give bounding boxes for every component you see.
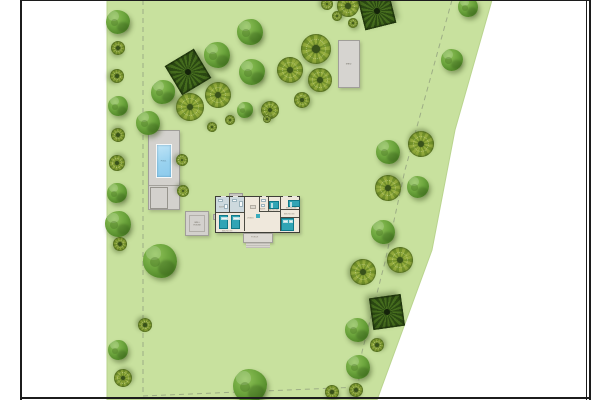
tree-foliage-blob	[240, 382, 250, 392]
tree-foliage-blob	[387, 152, 399, 163]
tree-fluffy	[143, 244, 177, 278]
tree-foliage-blob	[162, 92, 174, 103]
tree-patterned	[383, 243, 417, 277]
tree-fluffy	[407, 176, 429, 198]
tree-patterned	[108, 125, 127, 144]
tree-foliage-blob	[112, 104, 118, 110]
page-border-bottom	[20, 397, 591, 399]
tree-patterned	[374, 174, 401, 201]
page-border-right-inner	[589, 0, 590, 400]
tree-foliage-blob	[242, 29, 250, 37]
tree-fluffy	[376, 140, 400, 164]
tree-foliage-blob	[417, 187, 428, 197]
tree-foliage-blob	[209, 52, 217, 60]
tree-foliage-blob	[116, 193, 126, 202]
tree-patterned	[369, 337, 385, 353]
tree-palmate	[369, 294, 405, 330]
tree-patterned	[403, 126, 439, 162]
page-border-left	[20, 0, 22, 400]
tree-foliage-blob	[112, 348, 118, 354]
tree-foliage-blob	[451, 60, 462, 70]
tree-foliage-blob	[117, 224, 130, 236]
tree-patterned	[174, 152, 191, 169]
tree-patterned	[293, 91, 311, 109]
page-border-right-outer	[586, 0, 587, 400]
tree-fluffy	[346, 355, 370, 379]
tree-patterned	[111, 235, 130, 254]
tree-foliage-blob	[357, 367, 369, 378]
tree-foliage-blob	[244, 69, 252, 77]
tree-trunk-dot	[184, 68, 192, 76]
tree-trunk-dot	[375, 343, 379, 347]
tree-foliage-blob	[244, 110, 252, 117]
tree-patterned	[108, 67, 125, 84]
tree-foliage-blob	[158, 260, 175, 275]
tree-trunk-dot	[374, 8, 381, 15]
tree-fluffy	[107, 183, 127, 203]
tree-foliage-blob	[462, 5, 468, 11]
tree-foliage-blob	[240, 108, 245, 113]
tree-fluffy	[458, 0, 478, 17]
tree-fluffy	[136, 111, 160, 135]
tree-fluffy	[239, 59, 265, 85]
tree-foliage-blob	[382, 232, 394, 243]
tree-patterned	[345, 254, 380, 289]
tree-fluffy	[237, 102, 253, 118]
tree-fluffy	[441, 49, 463, 71]
tree-foliage-blob	[356, 330, 368, 341]
tree-foliage-blob	[216, 55, 229, 67]
tree-fluffy	[371, 220, 395, 244]
tree-patterned	[108, 38, 128, 58]
tree-patterned	[137, 317, 153, 333]
tree-foliage-blob	[110, 221, 118, 229]
tree-trunk-dot	[115, 161, 119, 165]
tree-patterned	[307, 67, 334, 94]
tree-foliage-blob	[117, 106, 127, 115]
tree-foliage-blob	[150, 257, 160, 267]
tree-fluffy	[108, 96, 128, 116]
tree-trunk-dot	[384, 309, 390, 315]
tree-fluffy	[108, 340, 128, 360]
tree-patterned	[319, 0, 335, 12]
tree-foliage-blob	[411, 184, 418, 191]
tree-fluffy	[204, 42, 230, 68]
tree-fluffy	[233, 369, 267, 400]
site-plan-canvas: POOL SHED WELLHOUSE	[0, 0, 609, 400]
tree-fluffy	[151, 80, 175, 104]
tree-foliage-blob	[467, 7, 477, 16]
tree-patterned	[348, 18, 358, 28]
trees-layer	[0, 0, 609, 400]
tree-patterned	[177, 185, 190, 198]
tree-fluffy	[345, 318, 369, 342]
tree-trunk-dot	[143, 323, 147, 327]
tree-foliage-blob	[117, 22, 129, 33]
tree-foliage-blob	[249, 32, 262, 44]
page-border-top	[20, 0, 591, 1]
tree-trunk-dot	[354, 388, 358, 392]
tree-fluffy	[237, 19, 263, 45]
tree-palmate	[358, 0, 397, 30]
tree-foliage-blob	[111, 191, 117, 197]
tree-patterned	[223, 113, 236, 126]
tree-fluffy	[105, 211, 131, 237]
tree-patterned	[200, 77, 236, 113]
tree-patterned	[206, 121, 218, 133]
tree-foliage-blob	[445, 57, 452, 64]
tree-foliage-blob	[251, 72, 264, 84]
tree-patterned	[108, 154, 125, 171]
tree-patterned	[113, 368, 133, 388]
tree-foliage-blob	[117, 350, 127, 359]
tree-fluffy	[106, 10, 130, 34]
tree-foliage-blob	[147, 123, 159, 134]
